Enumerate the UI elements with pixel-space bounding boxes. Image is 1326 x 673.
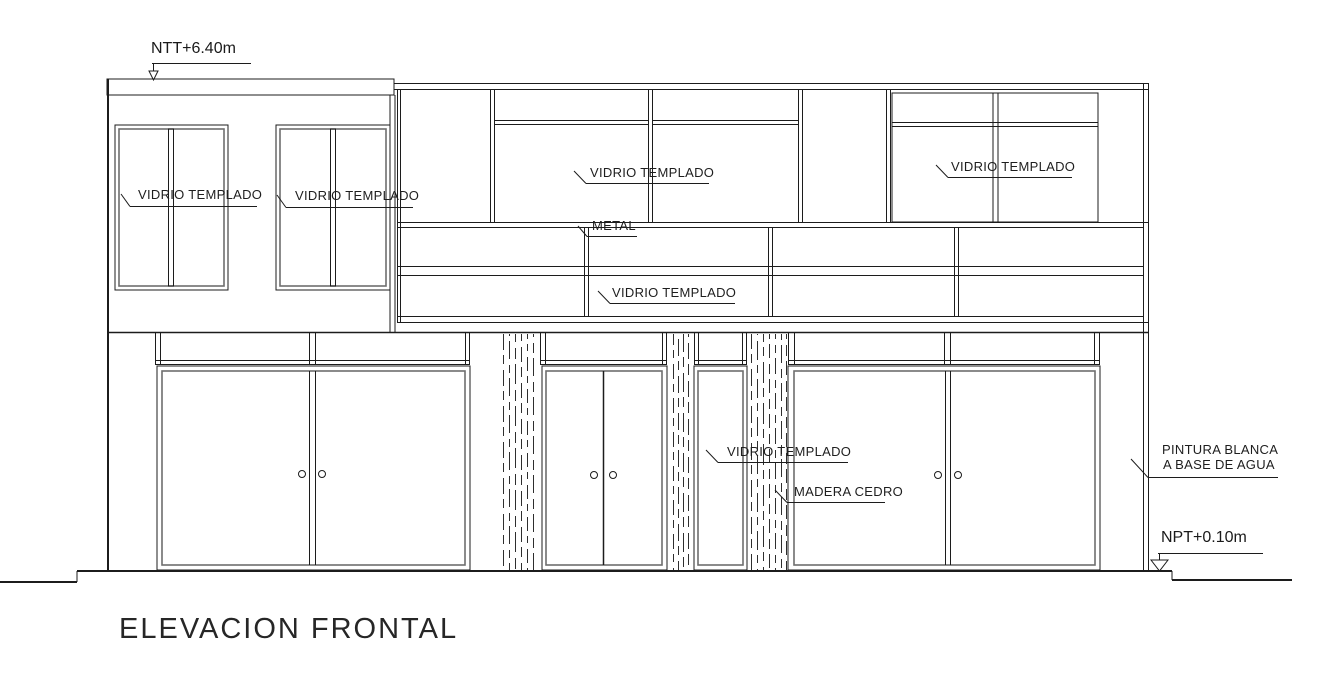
door-handle — [591, 472, 598, 479]
ground-line — [0, 571, 1292, 582]
glass-label-left-window-2: VIDRIO TEMPLADO — [295, 189, 419, 203]
door-handle — [955, 472, 962, 479]
door-handle — [299, 471, 306, 478]
door-handle — [610, 472, 617, 479]
metal-band-label: METAL — [592, 219, 636, 233]
annotation-leaders — [121, 165, 1278, 503]
wood-column-2 — [674, 334, 689, 570]
white-paint-label-line2: A BASE DE AGUA — [1163, 458, 1275, 472]
cedar-wood-label: MADERA CEDRO — [794, 485, 903, 499]
wood-column-1 — [504, 334, 534, 570]
glass-label-upper-right-window: VIDRIO TEMPLADO — [951, 160, 1075, 174]
glass-label-spandrel-band: VIDRIO TEMPLADO — [612, 286, 736, 300]
glass-label-left-window-1: VIDRIO TEMPLADO — [138, 188, 262, 202]
elevation-drawing-sheet: NTT+6.40m VIDRIO TEMPLADO VIDRIO TEMPLAD… — [0, 0, 1326, 673]
building-outline — [107, 79, 1149, 571]
upper-right-window — [892, 93, 1098, 222]
glass-label-first-floor: VIDRIO TEMPLADO — [727, 445, 851, 459]
white-paint-label-line1: PINTURA BLANCA — [1162, 443, 1278, 457]
door-handle — [935, 472, 942, 479]
roof-level-label: NTT+6.40m — [151, 40, 236, 58]
facade-bands — [397, 228, 1148, 323]
storefront-a — [155, 333, 470, 570]
floor-level-leader — [1151, 554, 1263, 572]
open-down-arrow-icon — [1151, 560, 1168, 571]
drawing-title: ELEVACION FRONTAL — [119, 613, 458, 646]
roof-level-leader — [149, 64, 251, 81]
storefront-b — [540, 333, 667, 570]
floor-level-label: NPT+0.10m — [1161, 529, 1247, 547]
door-handle — [319, 471, 326, 478]
elevation-linework — [0, 0, 1326, 673]
glass-label-curtain-wall: VIDRIO TEMPLADO — [590, 166, 714, 180]
left-window-1 — [115, 125, 228, 290]
